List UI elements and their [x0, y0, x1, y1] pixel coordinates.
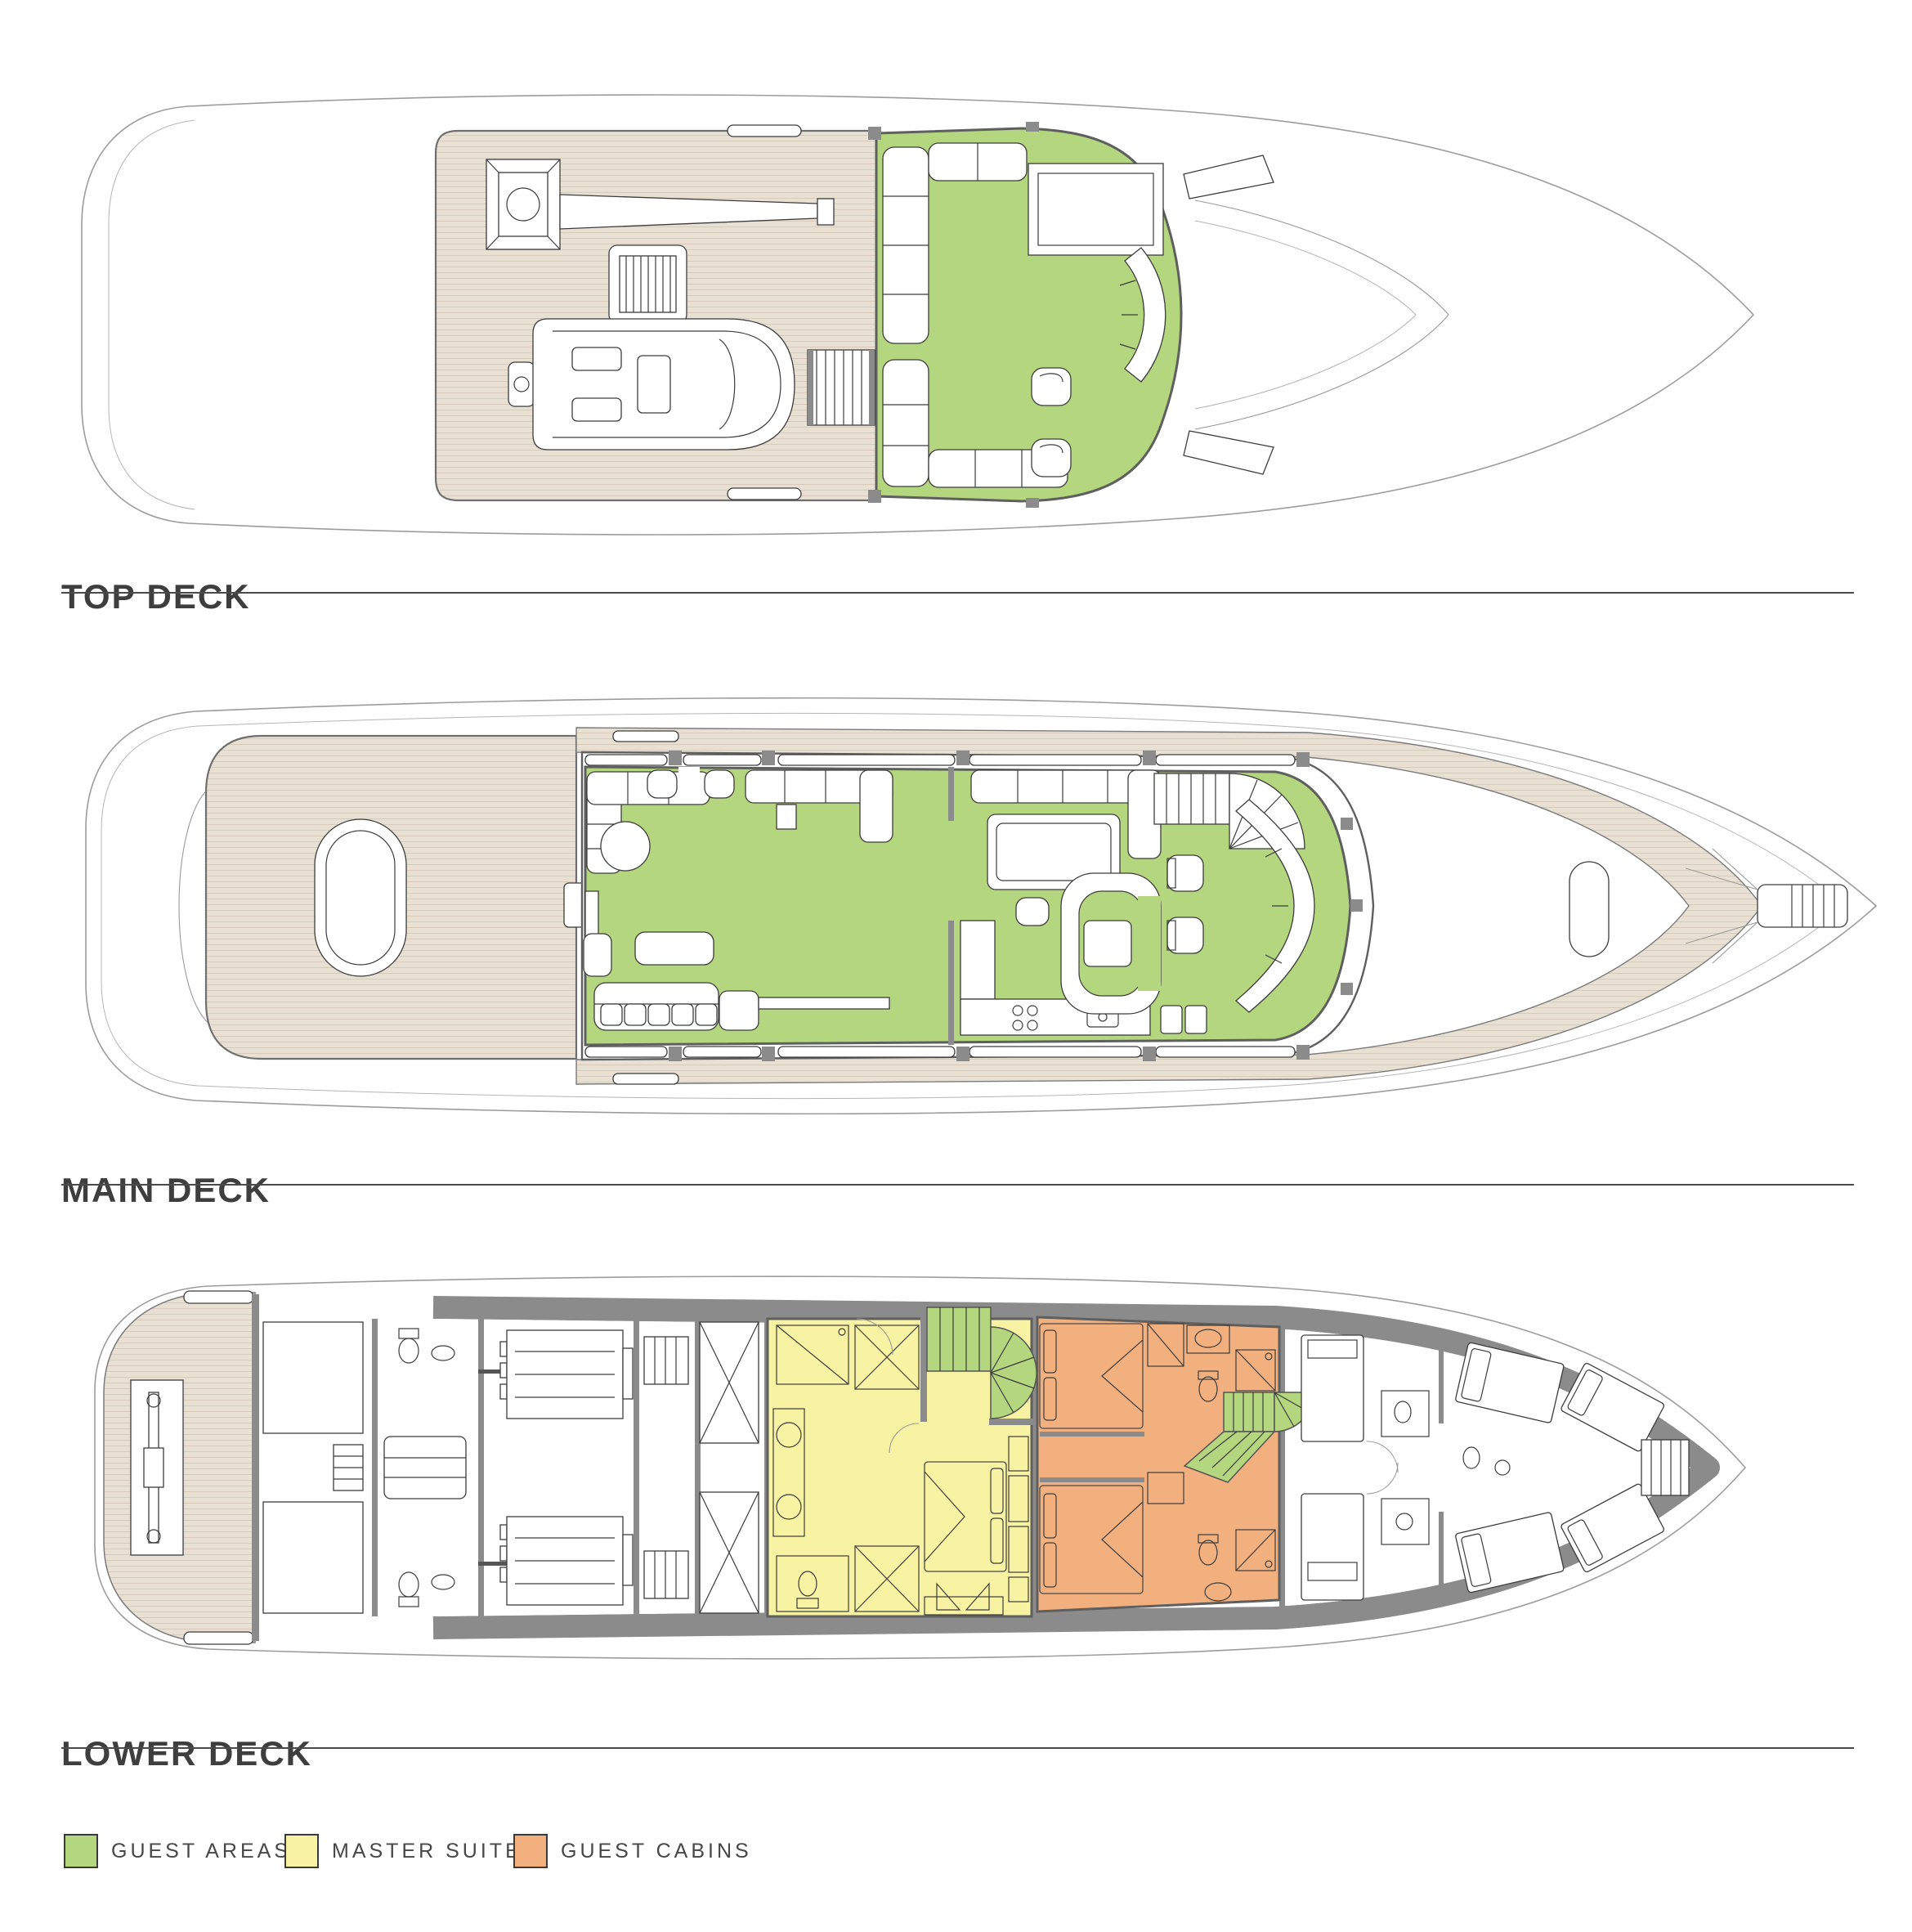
- top-deck-lounge: [868, 122, 1181, 508]
- dining-chair: [1016, 898, 1049, 926]
- main-deck-title: MAIN DECK: [61, 1173, 271, 1208]
- master-bed: [925, 1462, 1006, 1571]
- windlass-box: [1641, 1440, 1689, 1495]
- coffee-table-round: [601, 822, 650, 871]
- guest-cabins: [1037, 1317, 1314, 1611]
- boarding-gate: [728, 125, 801, 137]
- main-deck-plan: [0, 679, 1912, 1136]
- swim-platform: [104, 1291, 259, 1644]
- lower-deck-title: LOWER DECK: [61, 1737, 312, 1771]
- deck-plans-page: TOP DECK MAIN DECK LOWER DECK GUEST AREA…: [0, 0, 1912, 1932]
- pilothouse-table: [1084, 921, 1131, 966]
- tender-boat: [508, 319, 795, 450]
- chaise: [719, 991, 759, 1030]
- side-gate: [613, 1074, 678, 1084]
- armchair: [705, 770, 734, 798]
- legend-swatch-master-suite: [284, 1834, 319, 1868]
- lower-deck-plan: [0, 1271, 1912, 1668]
- appliance: [1185, 1006, 1207, 1033]
- section-rule: [61, 1184, 1854, 1186]
- helm-chair: [1167, 855, 1203, 891]
- salon: [584, 767, 1363, 1045]
- top-deck-stairs: [808, 350, 875, 425]
- legend-item-guest-areas: GUEST AREAS: [64, 1833, 291, 1869]
- door-gap: [678, 767, 700, 801]
- deck-hatch: [609, 245, 687, 323]
- sofa: [860, 770, 893, 842]
- appliance: [1161, 1006, 1182, 1033]
- single-bed: [1301, 1494, 1363, 1600]
- legend-item-master-suite: MASTER SUITE: [284, 1833, 522, 1869]
- section-rule: [61, 592, 1854, 594]
- single-bed: [1301, 1335, 1363, 1441]
- top-deck-title: TOP DECK: [61, 580, 251, 614]
- galley-counter: [960, 921, 995, 999]
- top-deck-plan: [0, 69, 1912, 540]
- helm-chair: [1167, 917, 1203, 953]
- guest-bed: [1040, 1324, 1143, 1428]
- legend-swatch-guest-cabins: [513, 1834, 548, 1868]
- legend-label: GUEST CABINS: [561, 1840, 752, 1863]
- aft-deck-table: [315, 819, 406, 976]
- pilothouse-sofa: [1061, 873, 1161, 1014]
- legend-item-guest-cabins: GUEST CABINS: [513, 1833, 752, 1869]
- armchair: [584, 934, 611, 976]
- armchair: [647, 770, 677, 798]
- crew-table: [384, 1437, 466, 1499]
- guest-bed: [1040, 1486, 1143, 1594]
- coffee-table: [635, 932, 714, 965]
- section-rule: [61, 1747, 1854, 1749]
- sofa: [883, 360, 929, 486]
- boarding-gate: [728, 488, 801, 500]
- legend-label: MASTER SUITE: [332, 1840, 522, 1863]
- foredeck-locker: [1569, 862, 1609, 957]
- side-gate: [613, 731, 678, 742]
- low-cabinet: [759, 997, 889, 1009]
- side-table: [777, 805, 796, 829]
- legend-swatch-guest-areas: [64, 1834, 98, 1868]
- master-suite: [768, 1302, 1038, 1616]
- legend-label: GUEST AREAS: [111, 1840, 291, 1863]
- tv-cabinet: [1028, 164, 1163, 255]
